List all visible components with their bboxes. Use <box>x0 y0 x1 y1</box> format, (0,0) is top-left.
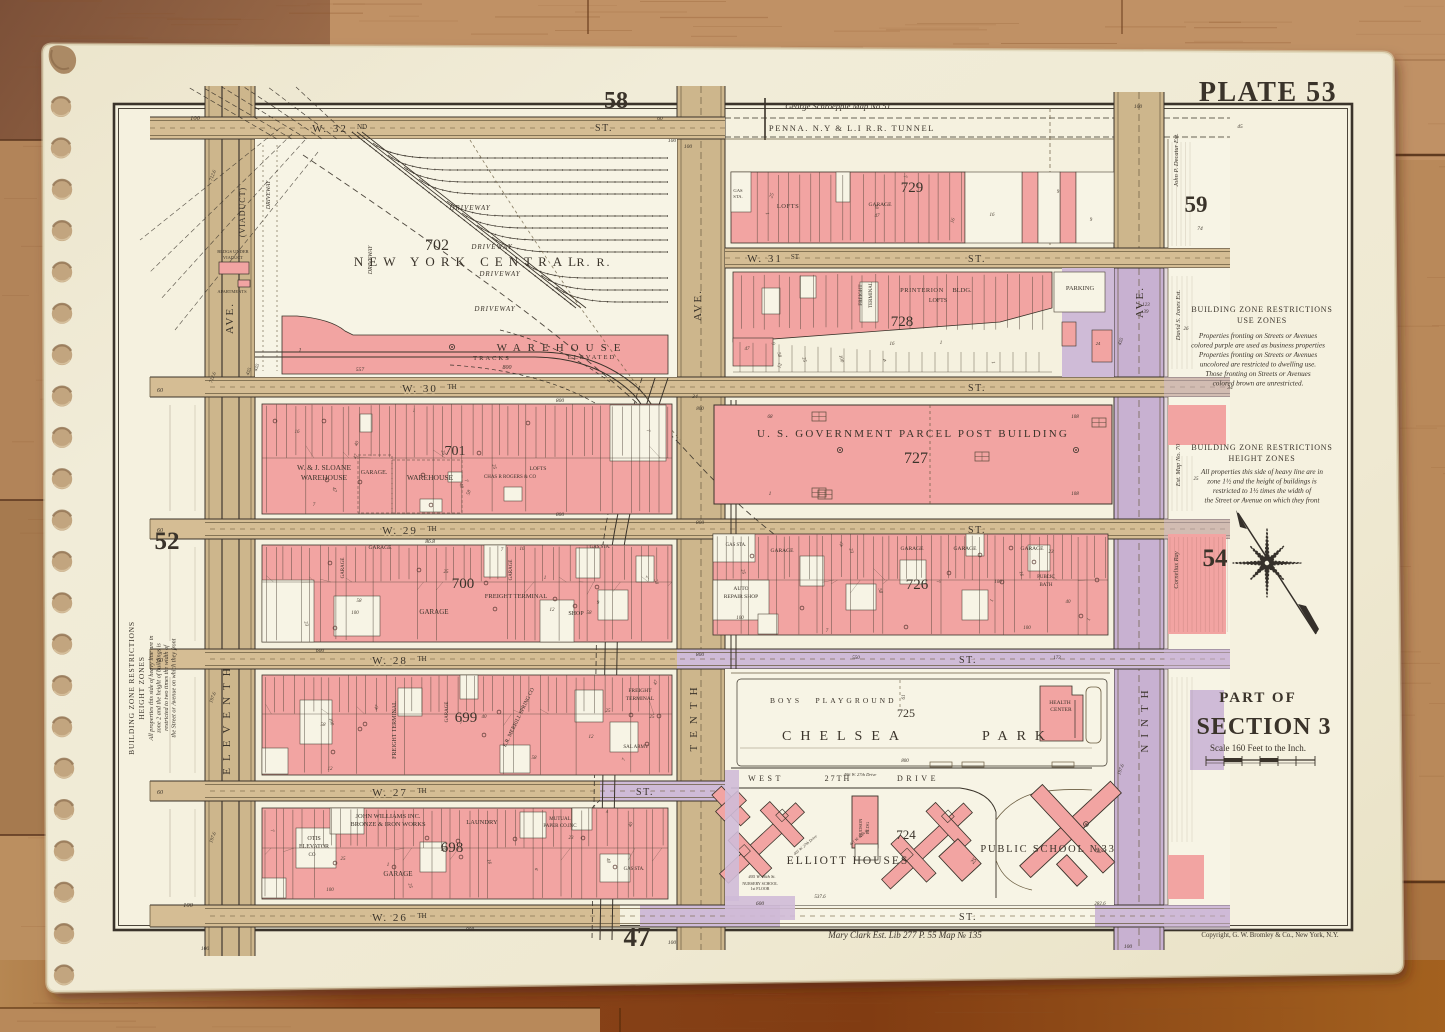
svg-text:GARAGE: GARAGE <box>341 558 346 579</box>
svg-text:(VIADUCT): (VIADUCT) <box>238 187 247 237</box>
svg-text:FREIGHT: FREIGHT <box>628 688 652 694</box>
svg-text:GARAGE.: GARAGE. <box>361 470 388 476</box>
svg-text:60: 60 <box>657 116 663 122</box>
svg-text:800: 800 <box>466 927 475 933</box>
svg-text:100: 100 <box>351 611 359 616</box>
svg-text:restricted to 1½ times the wid: restricted to 1½ times the width of <box>1213 487 1312 495</box>
svg-text:DRIVEWAY: DRIVEWAY <box>470 243 512 251</box>
svg-text:12: 12 <box>589 735 595 740</box>
svg-text:25: 25 <box>444 570 450 575</box>
svg-text:58: 58 <box>604 88 628 114</box>
svg-text:800: 800 <box>556 398 565 404</box>
svg-text:David S. Jones Est.: David S. Jones Est. <box>1175 289 1182 341</box>
svg-text:Est. Map No. 70: Est. Map No. 70 <box>1175 443 1182 487</box>
svg-text:PLATE 53: PLATE 53 <box>1199 77 1337 108</box>
svg-text:ST.: ST. <box>595 123 613 134</box>
svg-text:SAL ARMY: SAL ARMY <box>623 745 649 750</box>
svg-text:JOHN WILLIAMS INC.: JOHN WILLIAMS INC. <box>355 813 420 820</box>
svg-text:GARAGE: GARAGE <box>369 545 393 551</box>
svg-text:BLDG.: BLDG. <box>952 287 972 294</box>
svg-text:DRIVE: DRIVE <box>897 774 939 783</box>
svg-text:1: 1 <box>299 348 302 354</box>
svg-text:1: 1 <box>413 409 416 414</box>
svg-text:58: 58 <box>321 723 327 728</box>
svg-text:restricted to two times the wi: restricted to two times the width of <box>163 644 170 731</box>
svg-text:WAREHOUSE: WAREHOUSE <box>301 473 348 482</box>
svg-text:ELEVENTH: ELEVENTH <box>221 661 233 774</box>
svg-text:800: 800 <box>696 407 704 412</box>
svg-text:100: 100 <box>668 940 677 946</box>
svg-text:800: 800 <box>556 512 565 518</box>
svg-text:LOFTS: LOFTS <box>777 203 799 210</box>
svg-text:25: 25 <box>1194 477 1200 482</box>
svg-text:TH: TH <box>447 383 456 391</box>
svg-text:74: 74 <box>1197 225 1203 232</box>
svg-text:AVE.: AVE. <box>1134 286 1146 318</box>
svg-text:PARK: PARK <box>982 729 1054 744</box>
svg-text:45: 45 <box>1237 123 1243 130</box>
svg-text:HEIGHT ZONES: HEIGHT ZONES <box>137 656 146 719</box>
svg-text:DRIVEWAY: DRIVEWAY <box>478 270 520 278</box>
svg-text:Copyright, G. W. Bromley & Co.: Copyright, G. W. Bromley & Co., New York… <box>1201 932 1338 939</box>
svg-text:26: 26 <box>1184 327 1190 332</box>
svg-text:61: 61 <box>902 695 907 700</box>
svg-text:DRIVEWAY: DRIVEWAY <box>266 180 272 210</box>
svg-text:GARAGE: GARAGE <box>419 608 448 616</box>
svg-text:PENNA. N.Y & L.I R.R. TUNNEL: PENNA. N.Y & L.I R.R. TUNNEL <box>769 123 935 133</box>
svg-text:OTIS: OTIS <box>307 836 320 842</box>
svg-text:STA.: STA. <box>733 194 742 199</box>
svg-text:LAUNDRY: LAUNDRY <box>466 819 498 826</box>
svg-text:100: 100 <box>994 580 1002 585</box>
svg-text:John P. Decatur Est.: John P. Decatur Est. <box>1173 133 1180 187</box>
svg-text:BLDGS UNDER: BLDGS UNDER <box>217 249 248 254</box>
svg-text:PUBLIC SCHOOL №33: PUBLIC SCHOOL №33 <box>980 844 1115 855</box>
svg-text:Scale 160 Feet to the Inch.: Scale 160 Feet to the Inch. <box>1210 743 1306 753</box>
svg-text:16: 16 <box>990 213 996 218</box>
svg-text:ELEVATOR: ELEVATOR <box>299 844 329 850</box>
svg-text:PLAYGROUND: PLAYGROUND <box>816 696 897 705</box>
svg-text:47: 47 <box>875 214 881 219</box>
svg-text:406 W. 27th Drive: 406 W. 27th Drive <box>844 772 877 777</box>
svg-text:GARAGE: GARAGE <box>445 702 450 723</box>
svg-text:GARAGE: GARAGE <box>901 546 925 552</box>
svg-text:BUILDING ZONE RESTRICTIONS: BUILDING ZONE RESTRICTIONS <box>1191 305 1332 314</box>
svg-text:DRIVEWAY: DRIVEWAY <box>448 204 490 212</box>
svg-text:NEW YORK CENTRAL: NEW YORK CENTRAL <box>354 254 582 269</box>
svg-text:the Street or Avenue on which: the Street or Avenue on which they front <box>171 638 178 737</box>
svg-text:725: 725 <box>897 706 915 720</box>
svg-text:34: 34 <box>691 393 698 400</box>
svg-text:100: 100 <box>190 115 201 122</box>
svg-text:All properties this side of he: All properties this side of heavy line a… <box>148 635 155 741</box>
svg-text:25: 25 <box>606 709 612 714</box>
svg-text:SECTION 3: SECTION 3 <box>1196 714 1331 740</box>
svg-text:16: 16 <box>520 547 526 552</box>
svg-text:34: 34 <box>1226 384 1233 391</box>
svg-text:W. 26: W. 26 <box>372 912 408 924</box>
svg-text:PRINTERION: PRINTERION <box>900 287 944 294</box>
svg-text:702: 702 <box>425 237 449 254</box>
svg-text:TENTH: TENTH <box>688 680 700 751</box>
svg-text:W. 32: W. 32 <box>312 123 348 135</box>
svg-text:58: 58 <box>532 756 538 761</box>
svg-text:All properties this side of he: All properties this side of heavy line a… <box>1200 468 1323 476</box>
svg-text:25: 25 <box>650 715 656 720</box>
svg-text:ST.: ST. <box>968 254 986 265</box>
svg-text:100: 100 <box>326 888 334 893</box>
svg-text:ST: ST <box>791 253 800 261</box>
svg-text:FREIGHT TERMINAL: FREIGHT TERMINAL <box>392 701 398 759</box>
svg-text:728: 728 <box>891 314 914 330</box>
svg-text:Properties fronting on Streets: Properties fronting on Streets or Avenue… <box>1198 332 1317 340</box>
svg-text:700: 700 <box>452 576 475 592</box>
svg-text:CO: CO <box>309 853 316 858</box>
svg-text:100: 100 <box>736 616 744 621</box>
svg-text:BOYS: BOYS <box>770 696 802 705</box>
svg-text:GARAGE: GARAGE <box>869 202 893 208</box>
svg-text:MUTUAL: MUTUAL <box>549 817 570 822</box>
svg-text:CHELSEA: CHELSEA <box>782 729 908 744</box>
svg-text:FREIGHT: FREIGHT <box>859 284 864 305</box>
svg-text:GAS: GAS <box>733 188 743 193</box>
svg-text:100: 100 <box>1023 626 1031 631</box>
svg-text:60: 60 <box>157 790 163 796</box>
svg-text:TH: TH <box>417 912 426 920</box>
svg-text:PART OF: PART OF <box>1219 690 1297 706</box>
svg-text:24: 24 <box>1096 341 1101 346</box>
svg-text:CENTER: CENTER <box>1050 707 1072 713</box>
svg-text:100: 100 <box>1124 944 1133 950</box>
svg-text:GAS STA.: GAS STA. <box>624 867 645 872</box>
svg-text:GARAGE: GARAGE <box>1021 546 1045 552</box>
svg-text:ST.: ST. <box>636 787 654 798</box>
svg-text:TERMINAL: TERMINAL <box>869 282 874 308</box>
svg-text:LOFTS: LOFTS <box>929 298 947 304</box>
svg-text:PAPER CO.INC: PAPER CO.INC <box>543 824 577 829</box>
svg-text:52: 52 <box>155 528 180 555</box>
svg-text:BRONZE & IRON WORKS: BRONZE & IRON WORKS <box>350 821 426 828</box>
svg-text:600: 600 <box>316 648 325 654</box>
svg-text:George Schroepple Map No 51: George Schroepple Map No 51 <box>785 101 891 111</box>
svg-text:729: 729 <box>901 180 924 196</box>
svg-text:12: 12 <box>328 767 334 772</box>
svg-text:23: 23 <box>569 836 575 841</box>
svg-text:the Street or Avenue on which: the Street or Avenue on which they front <box>1205 497 1321 505</box>
svg-text:1: 1 <box>387 863 390 868</box>
svg-text:47: 47 <box>745 347 751 352</box>
svg-text:173: 173 <box>1053 656 1061 661</box>
svg-text:726: 726 <box>906 577 929 593</box>
svg-text:HEALTH: HEALTH <box>1049 700 1071 706</box>
svg-text:58: 58 <box>587 611 593 616</box>
svg-text:557: 557 <box>356 367 365 373</box>
svg-text:68: 68 <box>768 415 774 420</box>
svg-text:12: 12 <box>550 608 556 613</box>
svg-text:colored purple are used as bus: colored purple are used as business prop… <box>1191 342 1325 350</box>
svg-text:TRACKS: TRACKS <box>473 355 511 362</box>
svg-text:Cornelius Ray: Cornelius Ray <box>1173 551 1180 588</box>
svg-text:550: 550 <box>852 656 860 661</box>
svg-text:25: 25 <box>341 857 347 862</box>
svg-text:ST.: ST. <box>968 383 986 394</box>
svg-text:U. S. GOVERNMENT PARCEL POST B: U. S. GOVERNMENT PARCEL POST BUILDING <box>757 428 1069 440</box>
svg-text:30: 30 <box>1097 850 1103 855</box>
svg-text:800: 800 <box>696 520 705 526</box>
svg-text:WAREHOUSE: WAREHOUSE <box>407 473 454 482</box>
svg-text:282.6: 282.6 <box>1094 902 1106 907</box>
svg-text:GARAGE: GARAGE <box>509 560 514 581</box>
svg-text:TERMINAL: TERMINAL <box>626 696 655 702</box>
svg-text:USE ZONES: USE ZONES <box>1237 316 1287 325</box>
svg-text:W. 31: W. 31 <box>747 253 783 265</box>
svg-text:40: 40 <box>1066 600 1072 605</box>
svg-text:REPAIR SHOP: REPAIR SHOP <box>724 594 759 600</box>
svg-text:1: 1 <box>769 492 772 497</box>
svg-text:DRIVEWAY: DRIVEWAY <box>368 245 374 275</box>
svg-text:PARKING: PARKING <box>1066 285 1095 292</box>
svg-text:23: 23 <box>1049 550 1055 555</box>
svg-text:PUBLIC: PUBLIC <box>1037 575 1055 580</box>
svg-text:537.6: 537.6 <box>814 895 826 900</box>
svg-text:TH: TH <box>417 655 426 663</box>
svg-text:zone 1½ and the height of buil: zone 1½ and the height of buildings is <box>1206 478 1317 486</box>
svg-text:SHOP: SHOP <box>568 611 584 617</box>
svg-text:800: 800 <box>503 365 512 371</box>
svg-text:600: 600 <box>756 901 765 907</box>
svg-text:GARAGE: GARAGE <box>954 546 978 552</box>
svg-text:405 W. 26th St.: 405 W. 26th St. <box>748 874 775 879</box>
svg-text:100: 100 <box>668 138 677 144</box>
svg-text:AVE.: AVE. <box>224 302 236 334</box>
svg-text:W. 28: W. 28 <box>372 655 408 667</box>
svg-text:ND: ND <box>357 123 367 131</box>
svg-text:BUILDING ZONE RESTRICTIONS: BUILDING ZONE RESTRICTIONS <box>1191 443 1332 452</box>
svg-text:1st FLOOR: 1st FLOOR <box>751 886 770 891</box>
svg-text:zone 2 and the height of build: zone 2 and the height of buildings is <box>156 643 163 734</box>
svg-text:800: 800 <box>696 652 705 658</box>
svg-text:APARTMENTS: APARTMENTS <box>217 289 247 294</box>
svg-text:R. R.: R. R. <box>576 255 611 269</box>
svg-text:GAS STA.: GAS STA. <box>726 543 747 548</box>
svg-text:CHAS R ROGERS & CO: CHAS R ROGERS & CO <box>484 475 537 480</box>
svg-text:ELLIOTT HOUSES: ELLIOTT HOUSES <box>787 855 910 867</box>
svg-text:724: 724 <box>896 827 916 842</box>
svg-text:FREIGHT TERMINAL: FREIGHT TERMINAL <box>485 593 547 600</box>
svg-text:100: 100 <box>684 144 693 150</box>
svg-text:GAS STA.: GAS STA. <box>590 545 611 550</box>
svg-text:W. 29: W. 29 <box>382 525 418 537</box>
svg-text:699: 699 <box>455 710 478 726</box>
svg-text:Those fronting on Streets or A: Those fronting on Streets or Avenues <box>1205 370 1311 378</box>
svg-text:GARAGE: GARAGE <box>383 870 412 878</box>
svg-text:100: 100 <box>201 946 210 952</box>
svg-text:BATH: BATH <box>1039 583 1052 588</box>
svg-text:727: 727 <box>904 450 928 467</box>
svg-text:59: 59 <box>1185 192 1208 217</box>
svg-text:16: 16 <box>441 848 447 853</box>
svg-text:uncolored are restricted to dw: uncolored are restricted to dwelling use… <box>1200 361 1316 369</box>
svg-text:LOFTS: LOFTS <box>530 466 547 472</box>
svg-text:47: 47 <box>624 922 651 952</box>
svg-text:54: 54 <box>1203 545 1229 572</box>
svg-text:AVE.: AVE. <box>692 289 704 321</box>
svg-text:86.8: 86.8 <box>425 539 435 545</box>
svg-text:BUILDING ZONE RESTRICTIONS: BUILDING ZONE RESTRICTIONS <box>127 621 136 755</box>
svg-text:W. 30: W. 30 <box>402 383 438 395</box>
svg-text:100: 100 <box>1134 104 1143 110</box>
svg-text:108: 108 <box>1071 492 1079 497</box>
svg-text:Properties fronting on Streets: Properties fronting on Streets or Avenue… <box>1198 351 1317 359</box>
svg-text:1: 1 <box>940 341 943 346</box>
svg-text:W. 27: W. 27 <box>372 787 408 799</box>
svg-text:WEST: WEST <box>748 774 784 783</box>
svg-text:701: 701 <box>445 444 466 459</box>
svg-text:TH: TH <box>427 525 436 533</box>
svg-text:colored brown are unrestricted: colored brown are unrestricted. <box>1213 380 1304 388</box>
svg-text:TH: TH <box>417 787 426 795</box>
svg-text:100: 100 <box>183 902 194 909</box>
svg-text:VIADUCT: VIADUCT <box>223 255 243 260</box>
svg-text:NINTH: NINTH <box>1139 683 1151 752</box>
svg-text:HEIGHT ZONES: HEIGHT ZONES <box>1228 454 1295 463</box>
svg-text:ELEVATED: ELEVATED <box>568 354 616 361</box>
svg-text:Mary Clark Est. Lib 277 P.: Mary Clark Est. Lib 277 P. 55 Map № 135 <box>827 930 982 940</box>
svg-text:60: 60 <box>157 388 163 394</box>
svg-text:DRIVEWAY: DRIVEWAY <box>473 305 515 313</box>
svg-text:16: 16 <box>295 430 301 435</box>
svg-text:1: 1 <box>544 576 547 581</box>
svg-text:58: 58 <box>357 599 363 604</box>
svg-text:W. & J. SLOANE: W. & J. SLOANE <box>297 463 352 472</box>
svg-text:ST.: ST. <box>959 912 977 923</box>
svg-text:108: 108 <box>1071 415 1079 420</box>
svg-text:40: 40 <box>482 715 488 720</box>
svg-text:GARAGE: GARAGE <box>771 548 795 554</box>
svg-text:16: 16 <box>890 342 896 347</box>
svg-text:AUTO: AUTO <box>733 586 748 592</box>
svg-text:ST.: ST. <box>959 655 977 666</box>
svg-text:800: 800 <box>901 759 909 764</box>
